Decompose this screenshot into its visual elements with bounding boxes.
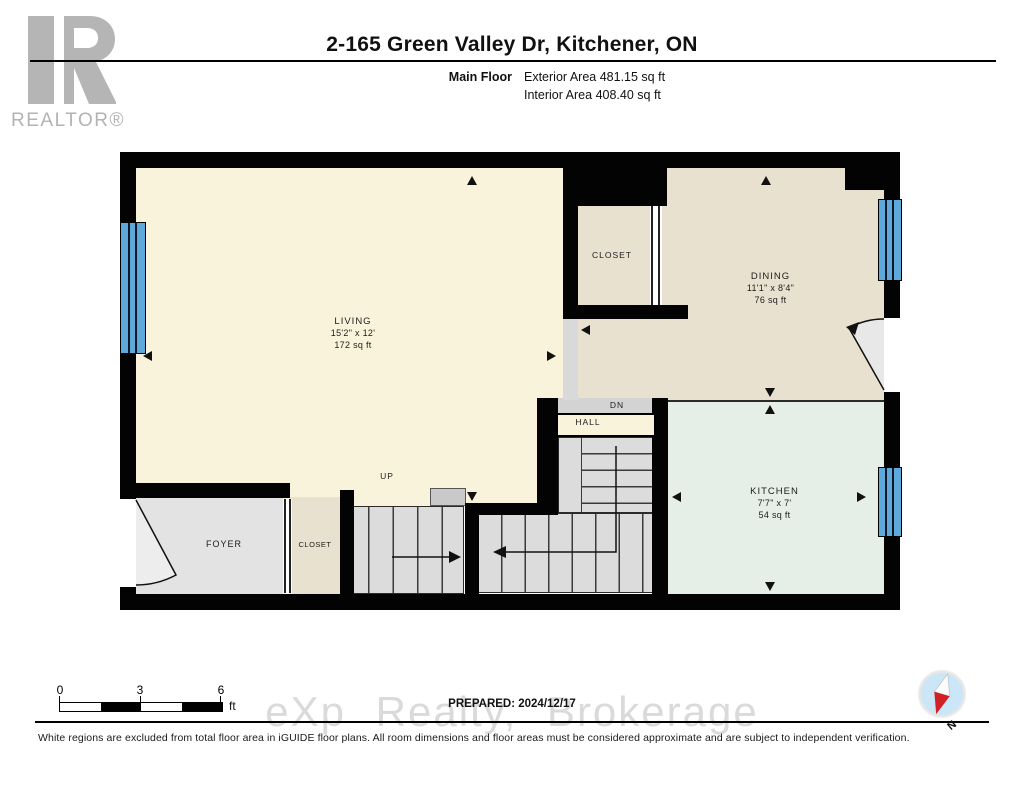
- kitchen-label: KITCHEN 7'7" x 7' 54 sq ft: [702, 486, 847, 521]
- scale-tick-6: 6: [214, 683, 228, 697]
- dimension-arrow-icon: [765, 388, 775, 397]
- stairs-down-label: DN: [597, 400, 637, 410]
- dimension-arrow-icon: [857, 492, 866, 502]
- page-title: 2-165 Green Valley Dr, Kitchener, ON: [0, 33, 1024, 57]
- room-dims: 11'1" x 8'4": [698, 283, 843, 295]
- entry-door-gap: [120, 499, 136, 587]
- scale-seg: [101, 703, 142, 711]
- dimension-arrow-icon: [765, 582, 775, 591]
- dimension-arrow-icon: [467, 492, 477, 501]
- closet-top-label: CLOSET: [575, 250, 649, 260]
- wall-closet-right: [340, 490, 354, 610]
- brokerage-watermark: eXp Realty, Brokerage: [0, 688, 1024, 736]
- wall-top: [120, 152, 900, 168]
- scale-seg: [182, 703, 223, 711]
- wall-bottom: [120, 594, 900, 610]
- window-dining: [878, 199, 902, 281]
- wall-below-closet: [563, 305, 688, 319]
- title-divider: [30, 60, 996, 62]
- prepared-date: PREPARED: 2024/12/17: [312, 698, 712, 710]
- wall-above-closet: [563, 152, 667, 206]
- dimension-arrow-icon: [765, 405, 775, 414]
- compass-icon: N: [910, 666, 974, 736]
- floorplan-page: REALTOR® 2-165 Green Valley Dr, Kitchene…: [0, 0, 1024, 791]
- wall-notch-topright: [845, 152, 900, 190]
- scale-seg: [60, 703, 101, 711]
- closet-foyer-label: CLOSET: [286, 540, 344, 549]
- dining-kitchen-divider: [668, 400, 884, 402]
- dimension-arrow-icon: [761, 176, 771, 185]
- stairs-up-label: UP: [372, 471, 402, 481]
- dimension-arrow-icon: [581, 325, 590, 335]
- window-living: [120, 222, 146, 354]
- hall-label: HALL: [556, 417, 620, 427]
- exterior-area: Exterior Area 481.15 sq ft: [524, 70, 665, 84]
- interior-area: Interior Area 408.40 sq ft: [524, 88, 661, 102]
- room-name: KITCHEN: [702, 486, 847, 498]
- window-kitchen: [878, 467, 902, 537]
- dimension-arrow-icon: [547, 351, 556, 361]
- dimension-arrow-icon: [467, 176, 477, 185]
- room-name: DINING: [698, 271, 843, 283]
- wall-hall-left: [537, 398, 558, 515]
- room-dims: 15'2" x 12': [283, 328, 423, 340]
- scale-unit: ft: [229, 699, 236, 713]
- realtor-wordmark: REALTOR®: [6, 110, 130, 132]
- footer-divider: [35, 721, 989, 723]
- room-dims: 7'7" x 7': [702, 498, 847, 510]
- staircase-down-upper: [558, 437, 654, 513]
- dining-label: DINING 11'1" x 8'4" 76 sq ft: [698, 271, 843, 306]
- floor-label: Main Floor: [330, 70, 512, 84]
- staircase-up: [344, 506, 464, 594]
- living-label: LIVING 15'2" x 12' 172 sq ft: [283, 316, 423, 351]
- room-name: LIVING: [283, 316, 423, 328]
- wall-foyer-top: [120, 483, 290, 498]
- closet-door-top: [650, 206, 662, 305]
- scale-tick-0: 0: [53, 683, 67, 697]
- foyer-label: FOYER: [174, 539, 274, 549]
- stair-treads: [581, 438, 653, 512]
- disclaimer-text: White regions are excluded from total fl…: [38, 732, 910, 744]
- room-area: 76 sq ft: [698, 295, 843, 307]
- wall-opening: [563, 317, 578, 400]
- scale-tick-3: 3: [133, 683, 147, 697]
- stair-step-landing: [430, 488, 466, 506]
- staircase-down-lower: [478, 513, 654, 593]
- room-area: 172 sq ft: [283, 340, 423, 352]
- north-label: N: [945, 719, 959, 733]
- dimension-arrow-icon: [143, 351, 152, 361]
- scale-seg: [141, 703, 182, 711]
- wall-stairs-left: [465, 505, 479, 610]
- scale-bar: [59, 702, 223, 712]
- dimension-arrow-icon: [672, 492, 681, 502]
- room-area: 54 sq ft: [702, 510, 847, 522]
- dining-door-gap: [884, 318, 900, 392]
